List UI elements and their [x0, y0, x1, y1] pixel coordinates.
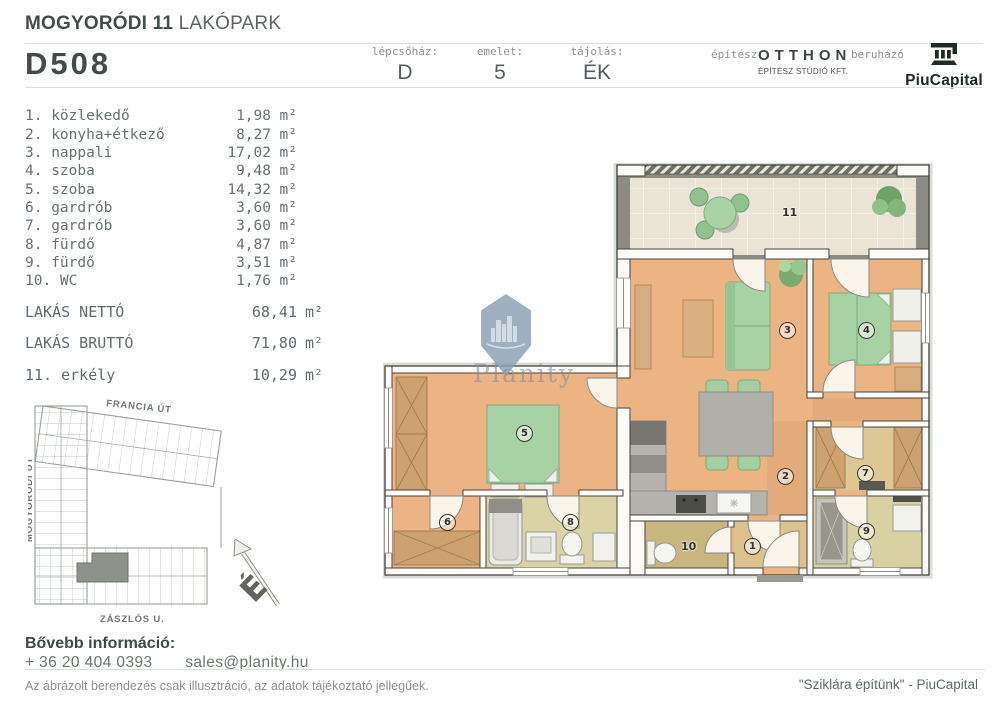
room-row: 4. szoba9,48m²: [25, 162, 297, 180]
street-label-top: FRANCIA ÚT: [106, 397, 173, 416]
room-area-unit: m²: [271, 200, 297, 216]
room-area: 3,60: [219, 218, 271, 234]
meta-orientation-label: tájolás:: [549, 45, 645, 58]
plan-label-4: 4: [858, 322, 875, 339]
room-row: 10. WC1,76m²: [25, 272, 297, 290]
total-gross-unit: m²: [297, 334, 323, 352]
compass-letter: É: [232, 567, 275, 609]
meta-floor-value: 5: [452, 61, 548, 85]
plan-label-10: 10: [681, 540, 696, 553]
floorplan-sheet: MOGYORÓDI 11 LAKÓPARK D508 lépcsőház: D …: [0, 0, 1000, 707]
plan-label-6: 6: [439, 514, 456, 531]
watermark-skyline-icon: [477, 306, 535, 358]
room-row: 7. gardrób3,60m²: [25, 217, 297, 235]
room-name: 3. nappali: [25, 145, 219, 161]
balcony-railing: [617, 165, 929, 176]
room-row: 1. közlekedő1,98m²: [25, 107, 297, 125]
room-row: 8. fürdő4,87m²: [25, 235, 297, 253]
room-name: 7. gardrób: [25, 218, 219, 234]
dining-furniture: [699, 380, 773, 470]
plan-label-7: 7: [857, 465, 874, 482]
architect-label: építész: [711, 48, 757, 61]
header-divider-top: [25, 43, 982, 44]
entrance-threshold: [757, 575, 803, 582]
street-label-bottom: ZÁSZLÓS U.: [100, 613, 164, 625]
plan-label-3: 3: [779, 322, 796, 339]
site-map: FRANCIA ÚT MOGYORÓDI ÚT ZÁSZLÓS U. É: [28, 390, 300, 630]
room-area-unit: m²: [271, 145, 297, 161]
street-label-left: MOGYORÓDI ÚT: [28, 457, 35, 542]
room-10-furniture: [647, 541, 676, 565]
planity-watermark-text: Planity: [473, 359, 575, 388]
meta-staircase: lépcsőház: D: [357, 45, 453, 85]
total-gross-area: 71,80: [245, 334, 297, 352]
project-title-light: LAKÓPARK: [179, 13, 282, 34]
meta-staircase-value: D: [357, 61, 453, 85]
room-area: 1,98: [219, 108, 271, 124]
piucapital-column-icon: [925, 40, 963, 66]
header-divider-bottom: [25, 87, 982, 88]
room-row: 5. szoba14,32m²: [25, 180, 297, 198]
balcony-floor: [630, 178, 916, 255]
total-net-label: LAKÁS NETTÓ: [25, 303, 245, 321]
total-gross-row: LAKÁS BRUTTÓ 71,80 m²: [25, 334, 323, 352]
room-row: 2. konyha+étkező8,27m²: [25, 125, 297, 143]
room-area: 8,27: [219, 127, 271, 143]
room-area-unit: m²: [271, 163, 297, 179]
room-area-unit: m²: [271, 273, 297, 289]
plan-label-8: 8: [562, 514, 579, 531]
room-name: 5. szoba: [25, 182, 219, 198]
room-area-unit: m²: [271, 108, 297, 124]
room-area: 9,48: [219, 163, 271, 179]
floor-plan: Planity 1 2 3 4 5 6 7 8 9 10 11: [383, 163, 955, 603]
room-area: 1,76: [219, 273, 271, 289]
room-area: 3,60: [219, 200, 271, 216]
total-net-area: 68,41: [245, 303, 297, 321]
balcony-unit: m²: [297, 366, 323, 384]
plan-label-9: 9: [858, 523, 875, 540]
room-area-unit: m²: [271, 182, 297, 198]
room-area-unit: m²: [271, 218, 297, 234]
compass-north-icon: É: [232, 539, 278, 610]
room-list: 1. közlekedő1,98m² 2. konyha+étkező8,27m…: [25, 107, 297, 290]
plan-label-11: 11: [782, 206, 797, 219]
contact-heading: Bővebb információ:: [25, 635, 175, 653]
meta-orientation-value: ÉK: [549, 61, 645, 85]
room-name: 2. konyha+étkező: [25, 127, 219, 143]
room-name: 6. gardrób: [25, 200, 219, 216]
site-map-building: [35, 406, 221, 604]
developer-logo: PiuCapital: [896, 40, 992, 90]
footer-disclaimer: Az ábrázolt berendezés csak illusztráció…: [25, 679, 429, 693]
room-area: 3,51: [219, 255, 271, 271]
room-name: 10. WC: [25, 273, 219, 289]
unit-id: D508: [25, 46, 111, 82]
room-row: 6. gardrób3,60m²: [25, 199, 297, 217]
room-row: 3. nappali17,02m²: [25, 144, 297, 162]
room-name: 1. közlekedő: [25, 108, 219, 124]
room-name: 9. fürdő: [25, 255, 219, 271]
footer-divider: [25, 669, 985, 670]
architect-logo-sub: ÉPÍTÉSZ STÚDIÓ KFT.: [758, 67, 848, 76]
plan-label-2: 2: [777, 468, 794, 485]
balcony-row: 11. erkély 10,29 m²: [25, 366, 323, 384]
room-area: 14,32: [219, 182, 271, 198]
project-title-bold: MOGYORÓDI 11: [25, 13, 173, 34]
room-area-unit: m²: [271, 127, 297, 143]
plan-label-5: 5: [516, 425, 533, 442]
total-net-unit: m²: [297, 303, 323, 321]
room-area: 17,02: [219, 145, 271, 161]
meta-floor: emelet: 5: [452, 45, 548, 85]
room-area-unit: m²: [271, 255, 297, 271]
room-name: 4. szoba: [25, 163, 219, 179]
meta-floor-label: emelet:: [452, 45, 548, 58]
total-net-row: LAKÁS NETTÓ 68,41 m²: [25, 303, 323, 321]
footer-slogan: "Sziklára építünk" - PiuCapital: [799, 677, 978, 692]
meta-staircase-label: lépcsőház:: [357, 45, 453, 58]
balcony-area: 10,29: [245, 366, 297, 384]
balcony-label: 11. erkély: [25, 366, 245, 384]
room-area-unit: m²: [271, 237, 297, 253]
room-name: 8. fürdő: [25, 237, 219, 253]
room-area: 4,87: [219, 237, 271, 253]
room-row: 9. fürdő3,51m²: [25, 254, 297, 272]
plan-label-1: 1: [744, 538, 761, 555]
room-6-furniture: [394, 531, 481, 565]
project-title: MOGYORÓDI 11 LAKÓPARK: [25, 13, 281, 35]
total-gross-label: LAKÁS BRUTTÓ: [25, 334, 245, 352]
architect-logo-name: OTTHON: [758, 47, 851, 64]
meta-orientation: tájolás: ÉK: [549, 45, 645, 85]
